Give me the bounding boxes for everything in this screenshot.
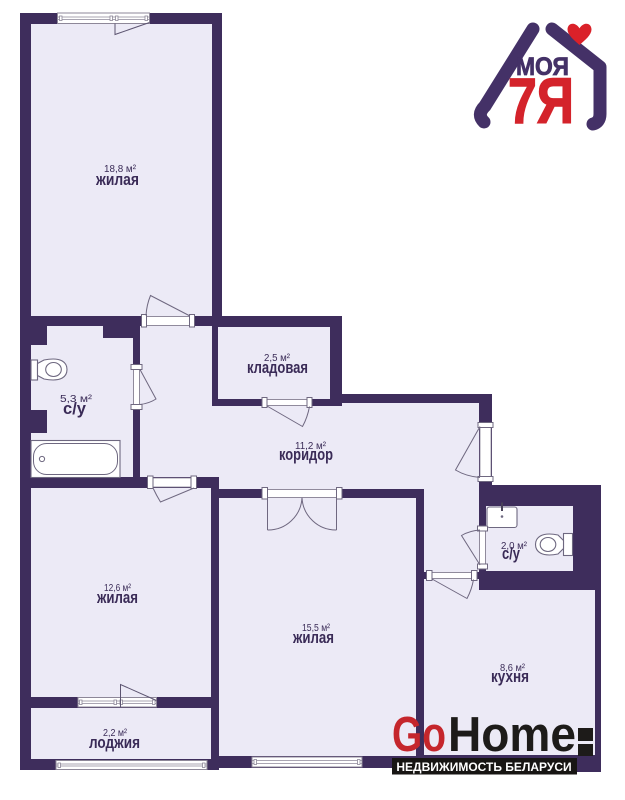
svg-text:Home: Home xyxy=(448,708,576,762)
svg-text:коридор: коридор xyxy=(279,445,333,464)
svg-text:с/у: с/у xyxy=(502,544,520,563)
svg-text:7Я: 7Я xyxy=(508,65,574,137)
svg-text:лоджия: лоджия xyxy=(89,733,140,752)
svg-text:Go: Go xyxy=(392,708,446,762)
svg-text:кухня: кухня xyxy=(491,667,529,686)
svg-text:жилая: жилая xyxy=(292,628,334,647)
svg-text:с/у: с/у xyxy=(63,399,87,418)
svg-text:жилая: жилая xyxy=(96,588,138,607)
svg-text:жилая: жилая xyxy=(95,170,139,189)
svg-text:кладовая: кладовая xyxy=(247,358,308,377)
svg-text:НЕДВИЖИМОСТЬ БЕЛАРУСИ: НЕДВИЖИМОСТЬ БЕЛАРУСИ xyxy=(396,760,571,774)
